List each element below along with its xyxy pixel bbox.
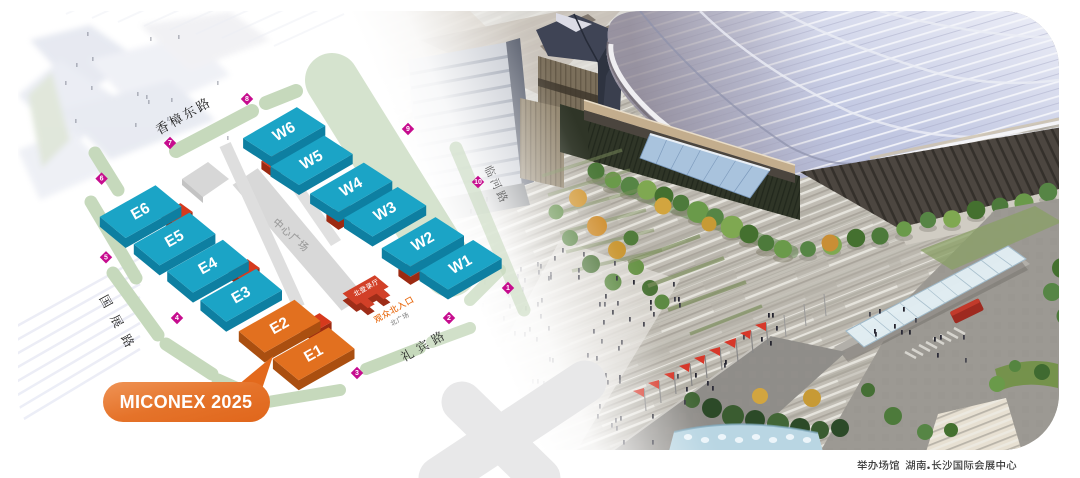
svg-text:8: 8 [245,96,249,103]
svg-text:2: 2 [447,315,451,322]
svg-text:6: 6 [100,176,104,183]
svg-text:9: 9 [406,126,410,133]
svg-text:3: 3 [355,370,359,377]
svg-text:10: 10 [474,179,482,186]
svg-text:5: 5 [104,254,108,261]
svg-text:MICONEX 2025: MICONEX 2025 [120,392,253,412]
svg-text:1: 1 [506,285,510,292]
svg-text:4: 4 [175,315,179,322]
svg-text:7: 7 [168,140,172,147]
